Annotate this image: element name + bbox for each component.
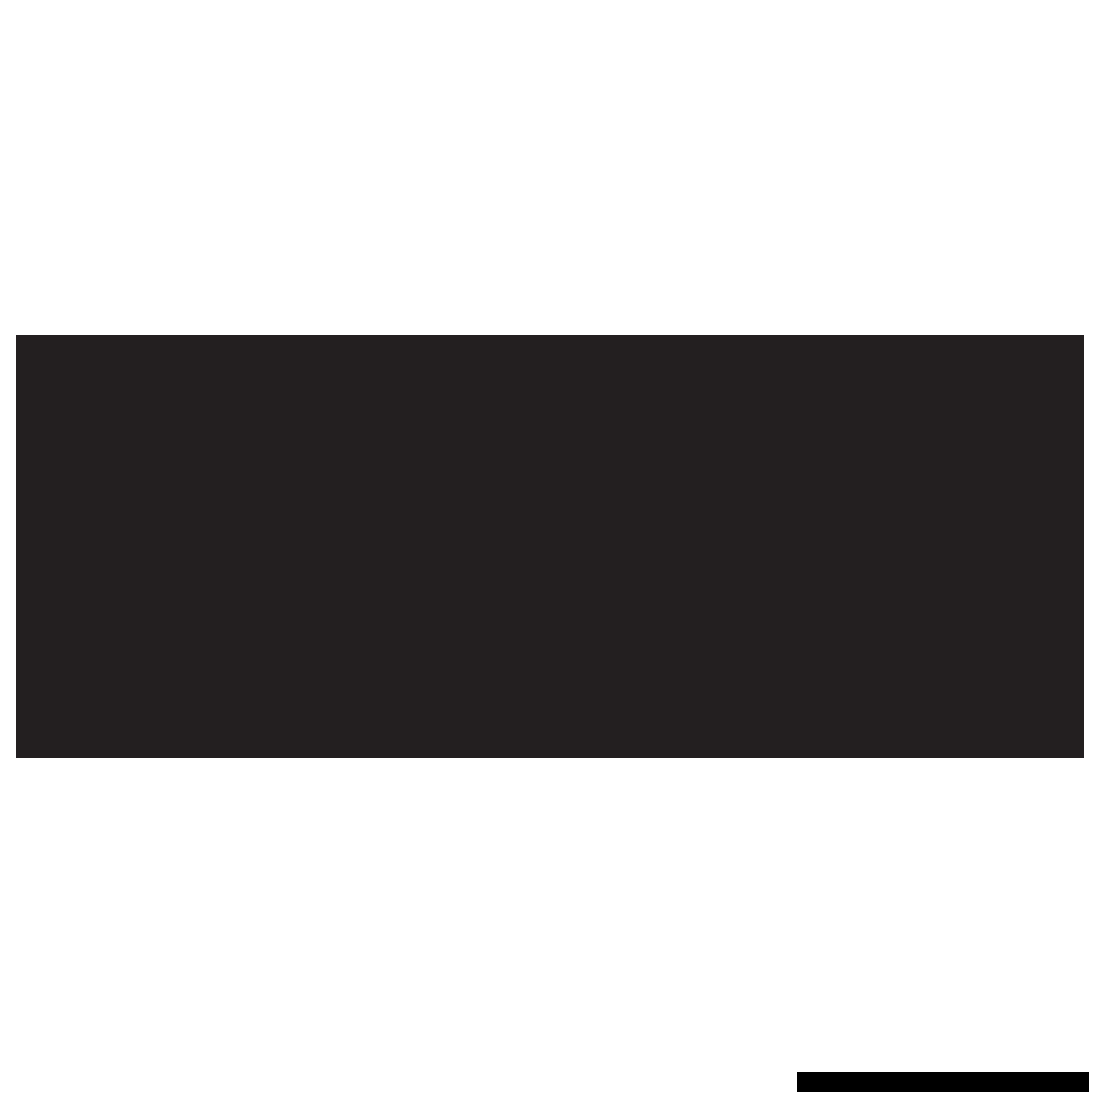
footer-black-bar [797, 1072, 1089, 1092]
page-background [0, 0, 1100, 1100]
dark-banner-block [16, 335, 1084, 758]
